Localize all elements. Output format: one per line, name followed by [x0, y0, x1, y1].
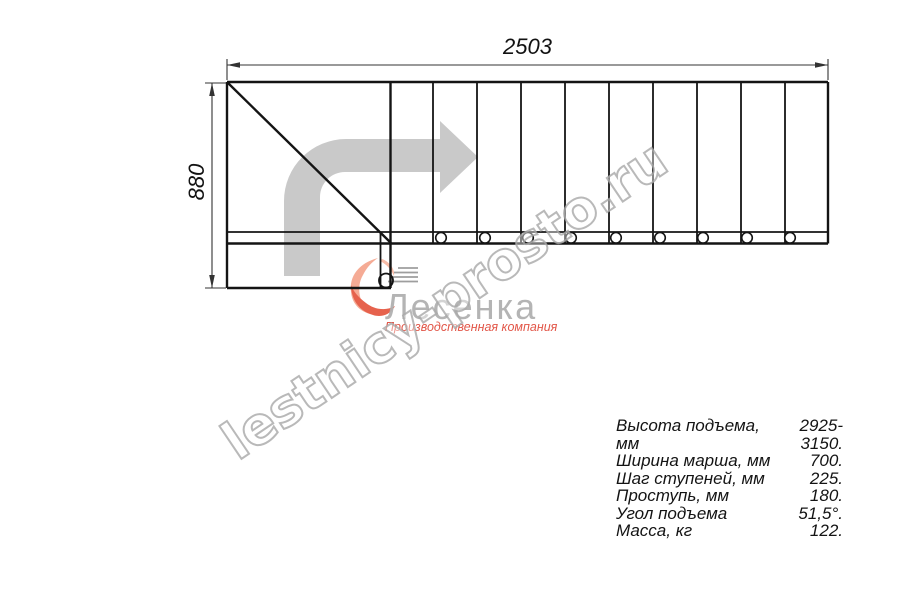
spec-label: Угол подъема — [616, 505, 727, 523]
spec-row: Масса, кг 122. — [616, 522, 843, 540]
spec-row: Шаг ступеней, мм 225. — [616, 470, 843, 488]
spec-label: Проступь, мм — [616, 487, 729, 505]
spec-label: Шаг ступеней, мм — [616, 470, 765, 488]
dim-arrow-left — [227, 62, 240, 68]
spec-label: Ширина марша, мм — [616, 452, 770, 470]
spec-value: 2925-3150. — [767, 417, 843, 452]
spec-value: 51,5°. — [798, 505, 843, 523]
dim-arrow-up — [209, 83, 215, 96]
spec-row: Высота подъема, мм 2925-3150. — [616, 417, 843, 452]
dimension-width-label: 2503 — [227, 36, 828, 58]
spec-row: Проступь, мм 180. — [616, 487, 843, 505]
spec-label: Масса, кг — [616, 522, 692, 540]
dim-arrow-right — [815, 62, 828, 68]
top-dimension — [227, 59, 828, 80]
dimension-height-label: 880 — [186, 140, 208, 224]
dim-arrow-down — [209, 275, 215, 288]
spec-value: 122. — [810, 522, 843, 540]
spec-row: Угол подъема 51,5°. — [616, 505, 843, 523]
specs-table: Высота подъема, мм 2925-3150. Ширина мар… — [616, 417, 843, 540]
spec-value: 700. — [810, 452, 843, 470]
spec-value: 180. — [810, 487, 843, 505]
spec-row: Ширина марша, мм 700. — [616, 452, 843, 470]
spec-label: Высота подъема, мм — [616, 417, 767, 452]
staircase-drawing-page: 2503 880 Лесенка Производственная компан… — [0, 0, 900, 600]
spec-value: 225. — [810, 470, 843, 488]
